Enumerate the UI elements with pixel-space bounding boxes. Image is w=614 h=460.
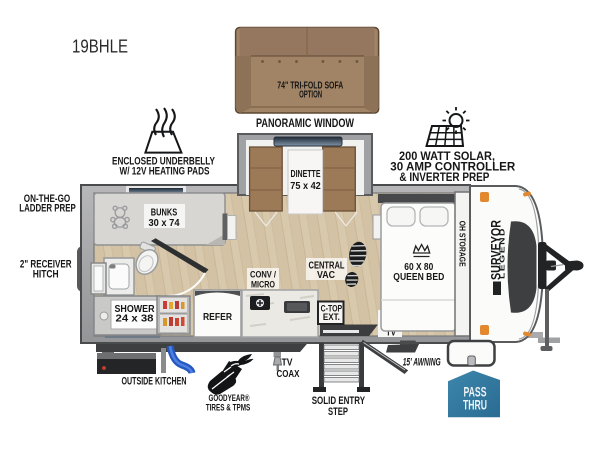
svg-text:PANORAMIC WINDOW: PANORAMIC WINDOW bbox=[256, 118, 354, 130]
svg-text:QUEEN BED: QUEEN BED bbox=[393, 272, 444, 283]
svg-text:OH STORAGE: OH STORAGE bbox=[457, 221, 467, 267]
svg-text:30 x 74: 30 x 74 bbox=[149, 217, 180, 229]
svg-text:STEP: STEP bbox=[328, 406, 348, 418]
svg-text:REFER: REFER bbox=[203, 311, 232, 323]
svg-text:OPTION: OPTION bbox=[299, 90, 322, 101]
svg-text:24 x 38: 24 x 38 bbox=[116, 313, 154, 325]
svg-text:75 x 42: 75 x 42 bbox=[290, 181, 321, 192]
svg-text:VAC: VAC bbox=[317, 269, 335, 281]
svg-text:HITCH: HITCH bbox=[33, 269, 59, 281]
svg-text:W/ 12V HEATING PADS: W/ 12V HEATING PADS bbox=[120, 166, 210, 178]
svg-text:COAX: COAX bbox=[277, 369, 300, 380]
svg-text:LEGEND: LEGEND bbox=[500, 227, 507, 279]
svg-text:MICRO: MICRO bbox=[251, 280, 275, 291]
svg-text:TV: TV bbox=[282, 358, 293, 369]
svg-text:GOODYEAR®: GOODYEAR® bbox=[209, 393, 250, 403]
svg-text:TIRES & TPMS: TIRES & TPMS bbox=[206, 403, 251, 413]
svg-text:EXT.: EXT. bbox=[323, 312, 340, 322]
svg-text:DINETTE: DINETTE bbox=[291, 169, 321, 180]
svg-text:OUTSIDE KITCHEN: OUTSIDE KITCHEN bbox=[122, 376, 187, 388]
svg-text:19BHLE: 19BHLE bbox=[72, 37, 128, 57]
svg-text:THRU: THRU bbox=[463, 396, 487, 412]
svg-text:& INVERTER PREP: & INVERTER PREP bbox=[399, 170, 489, 184]
svg-text:LADDER PREP: LADDER PREP bbox=[19, 203, 76, 215]
svg-text:15' AWNING: 15' AWNING bbox=[403, 357, 441, 369]
